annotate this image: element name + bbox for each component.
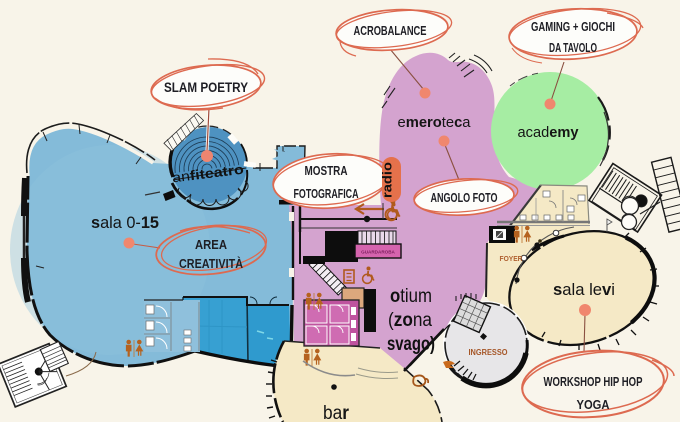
svg-text:radio: radio: [381, 162, 395, 198]
svg-text:MOSTRA: MOSTRA: [305, 164, 348, 178]
svg-text:FOYER: FOYER: [500, 254, 524, 263]
svg-text:AREA: AREA: [195, 238, 227, 252]
svg-text:academy: academy: [518, 125, 579, 141]
svg-text:YOGA: YOGA: [577, 397, 611, 412]
svg-text:SLAM POETRY: SLAM POETRY: [164, 80, 248, 95]
svg-text:emeroteca: emeroteca: [398, 114, 472, 131]
svg-text:INGRESSO: INGRESSO: [469, 348, 508, 357]
svg-text:sala levi: sala levi: [553, 281, 615, 299]
svg-text:svago): svago): [387, 334, 435, 355]
svg-text:bar: bar: [323, 403, 350, 422]
svg-text:GUARDAROBA: GUARDAROBA: [361, 250, 395, 255]
svg-text:CREATIVITÀ: CREATIVITÀ: [179, 256, 243, 271]
svg-text:DA TAVOLO: DA TAVOLO: [549, 41, 597, 55]
svg-text:otium: otium: [390, 286, 432, 307]
svg-text:GAMING + GIOCHI: GAMING + GIOCHI: [531, 20, 615, 34]
svg-text:sala 0-15: sala 0-15: [91, 214, 159, 232]
svg-text:(zona: (zona: [388, 310, 432, 331]
svg-text:ACROBALANCE: ACROBALANCE: [354, 23, 427, 38]
svg-text:FOTOGRAFICA: FOTOGRAFICA: [294, 187, 359, 201]
svg-text:ANGOLO FOTO: ANGOLO FOTO: [431, 191, 498, 205]
svg-text:WORKSHOP HIP HOP: WORKSHOP HIP HOP: [544, 374, 643, 389]
